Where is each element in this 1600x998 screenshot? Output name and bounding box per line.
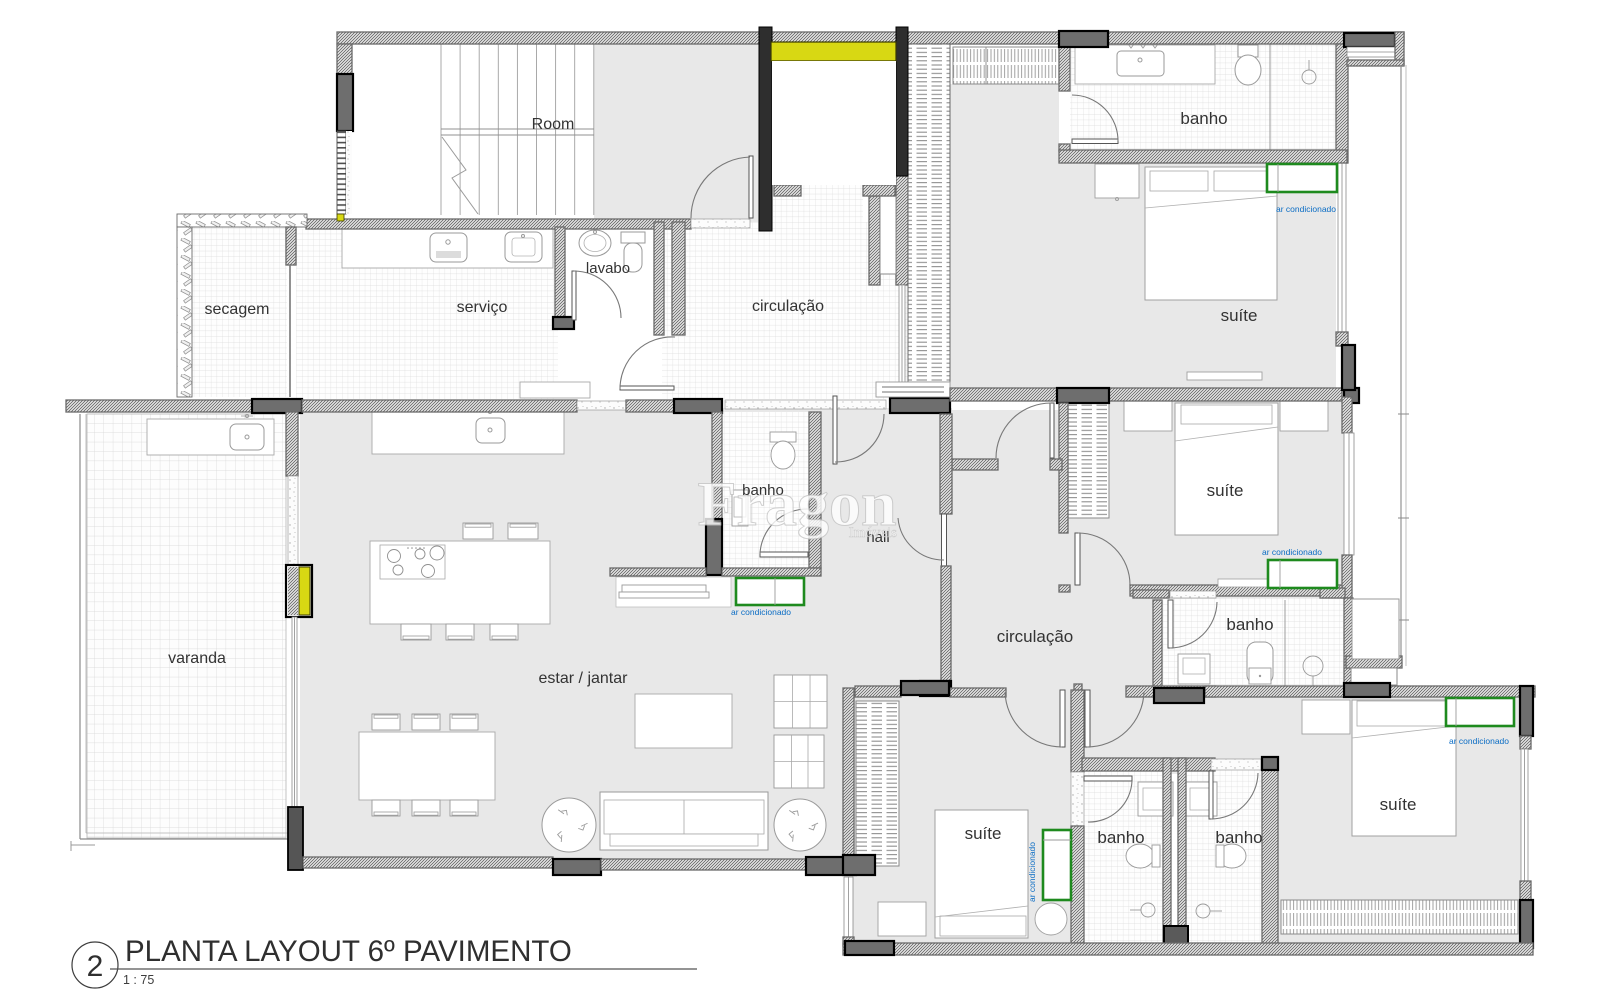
svg-text:ar condicionado: ar condicionado — [1262, 547, 1322, 557]
svg-text:ar condicionado: ar condicionado — [731, 607, 791, 617]
svg-text:ar condicionado: ar condicionado — [1276, 204, 1336, 214]
svg-text:lavabo: lavabo — [586, 260, 630, 277]
svg-text:banho: banho — [1215, 828, 1262, 847]
svg-text:2: 2 — [87, 950, 104, 983]
svg-text:ar condicionado: ar condicionado — [1027, 842, 1037, 902]
svg-text:varanda: varanda — [168, 650, 226, 667]
svg-text:secagem: secagem — [205, 301, 270, 318]
svg-text:banho: banho — [1226, 615, 1273, 634]
svg-text:suíte: suíte — [1207, 481, 1244, 500]
svg-text:ar condicionado: ar condicionado — [1449, 736, 1509, 746]
svg-text:circulação: circulação — [752, 298, 824, 315]
svg-text:1 : 75: 1 : 75 — [123, 973, 154, 987]
svg-text:banho: banho — [1097, 828, 1144, 847]
svg-text:banho: banho — [1180, 109, 1227, 128]
svg-text:suíte: suíte — [1380, 795, 1417, 814]
svg-text:Room: Room — [532, 116, 575, 133]
svg-text:suíte: suíte — [1221, 306, 1258, 325]
svg-text:suíte: suíte — [965, 824, 1002, 843]
svg-text:circulação: circulação — [997, 627, 1074, 646]
svg-text:Imóveis: Imóveis — [849, 525, 897, 541]
svg-text:PLANTA LAYOUT 6º PAVIMENTO: PLANTA LAYOUT 6º PAVIMENTO — [125, 935, 572, 968]
svg-text:serviço: serviço — [457, 299, 508, 316]
svg-text:estar / jantar: estar / jantar — [539, 670, 629, 687]
